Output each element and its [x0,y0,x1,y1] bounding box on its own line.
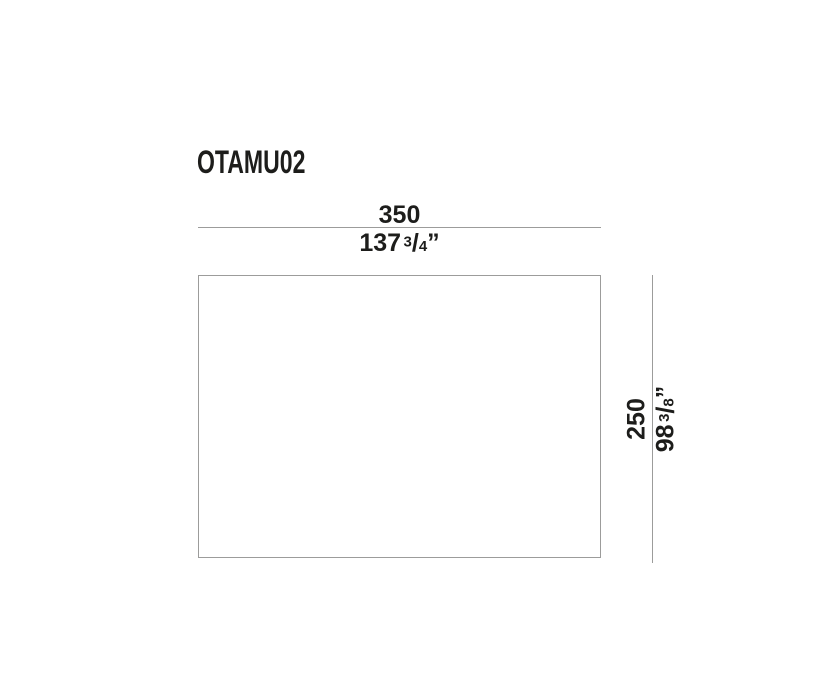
width-fraction-numerator: 3 [404,234,412,251]
width-imperial-label: 1373/4” [198,231,601,256]
width-imperial-whole: 137 [359,229,401,257]
width-metric-value: 350 [379,201,421,229]
width-fraction-slash: / [412,229,419,257]
height-fraction-numerator: 3 [656,414,673,422]
width-metric-label: 350 [198,203,601,228]
height-imperial-whole: 98 [652,424,680,452]
width-imperial-fraction: 3/4 [404,229,428,257]
width-inch-mark: ” [427,229,440,257]
product-outline-rectangle [198,275,601,558]
height-metric-label: 250 [625,398,650,440]
height-metric-value: 250 [623,398,651,440]
width-fraction-denominator: 4 [419,238,427,255]
height-fraction-slash: / [652,407,680,414]
height-inch-mark: ” [652,386,680,399]
width-dimension-line [198,227,601,228]
height-fraction-denominator: 8 [661,398,678,406]
height-imperial-label: 983/8” [654,386,679,452]
product-code-title: OTAMU02 [197,146,305,178]
technical-drawing-page: OTAMU02 350 1373/4” 250 983/8” [0,0,840,679]
height-imperial-fraction: 3/8 [652,398,680,422]
